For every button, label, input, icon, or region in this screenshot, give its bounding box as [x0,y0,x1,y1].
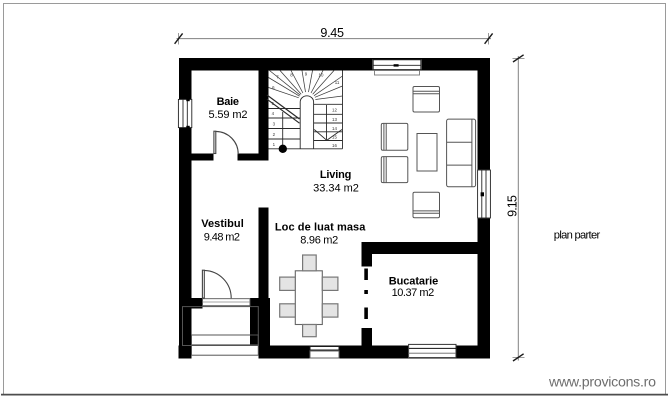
svg-text:Loc de luat masa: Loc de luat masa [275,222,366,234]
svg-text:11: 11 [335,80,340,85]
svg-text:15: 15 [332,135,337,140]
svg-text:10.37 m2: 10.37 m2 [392,287,435,299]
svg-text:plan parter: plan parter [554,230,601,242]
svg-text:4: 4 [272,111,275,116]
svg-text:5.59 m2: 5.59 m2 [209,109,248,121]
svg-text:9.48 m2: 9.48 m2 [204,232,240,244]
svg-text:12: 12 [332,108,337,113]
svg-text:8.96 m2: 8.96 m2 [300,234,338,246]
svg-text:9.15: 9.15 [506,195,520,217]
svg-text:14: 14 [332,126,337,131]
svg-text:16: 16 [332,143,337,148]
svg-text:Bucatarie: Bucatarie [389,275,439,287]
svg-text:9.45: 9.45 [320,26,344,40]
svg-text:Baie: Baie [217,96,239,108]
svg-text:3: 3 [273,121,276,126]
svg-text:2: 2 [273,132,276,137]
svg-text:Living: Living [320,169,352,181]
svg-text:1: 1 [273,142,276,147]
svg-text:5: 5 [272,101,275,106]
svg-text:9: 9 [305,72,308,77]
svg-text:Vestibul: Vestibul [201,218,244,230]
svg-text:33.34 m2: 33.34 m2 [313,182,359,194]
svg-text:10: 10 [319,73,324,78]
svg-text:13: 13 [332,117,337,122]
svg-text:7: 7 [276,75,279,80]
svg-text:www.provicons.ro: www.provicons.ro [548,375,656,391]
